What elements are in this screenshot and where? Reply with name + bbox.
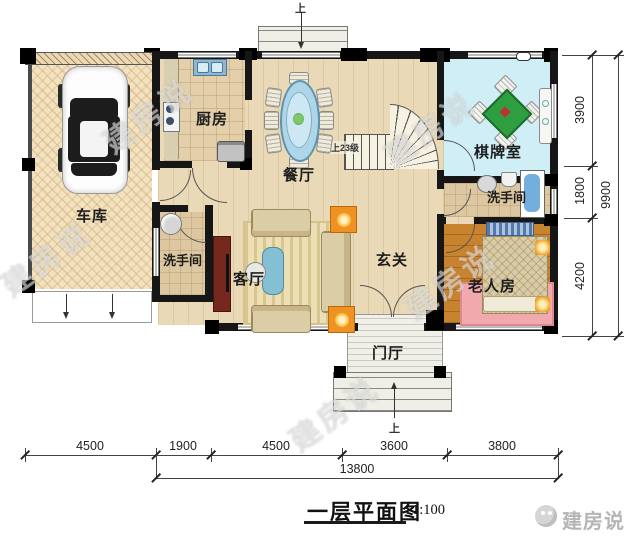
room-label-living: 客厅 [233, 268, 265, 289]
dim-bottom-2: 4500 [262, 439, 290, 453]
chess-cabinet-knob [542, 118, 549, 125]
dining-chair [265, 133, 282, 154]
staircase-label: 上23级 [330, 141, 360, 154]
front-steps-arrow-head [391, 382, 397, 389]
back-steps [258, 26, 348, 54]
sofa-main [321, 231, 351, 313]
nightstand-lamp [535, 240, 550, 255]
dim-right-0: 3900 [573, 88, 587, 132]
top-wall-vent [516, 52, 531, 61]
column [205, 320, 219, 334]
front-steps-arrow [394, 384, 395, 418]
dim-bottom-1: 1900 [169, 439, 197, 453]
dim-right-2: 4200 [573, 254, 587, 298]
chess-cabinet [539, 88, 552, 144]
side-table [328, 306, 355, 333]
sink-left-bath [160, 213, 182, 235]
driveway-arrow-line [112, 294, 113, 312]
kitchen-bottom-wall [158, 161, 192, 168]
bath-right-window [551, 189, 557, 215]
dining-plant [293, 113, 304, 125]
chess-cabinet-knob [542, 100, 549, 107]
room-label-bath-left: 洗手间 [163, 250, 202, 269]
kitchen-top-window [178, 52, 236, 58]
column [544, 214, 558, 226]
kitchen-right-wall [245, 51, 252, 100]
bath-left-right-wall [205, 205, 213, 302]
driveway-arrow-head [63, 312, 69, 319]
table-lamp-glow [335, 313, 349, 327]
brand-logo-icon-eye [541, 511, 545, 515]
dim-bottom-3: 3600 [380, 439, 408, 453]
refrigerator [217, 141, 245, 162]
dim-line-bottom-total [156, 478, 558, 479]
elder-bench [486, 222, 534, 236]
brand-logo-icon-eye [548, 511, 552, 515]
bath-left-window [153, 228, 159, 276]
side-table [330, 206, 357, 233]
dim-line-bottom [25, 455, 558, 456]
brand-name: 建房说 [562, 505, 625, 534]
tv-screen [226, 254, 229, 292]
column [420, 48, 450, 62]
elder-top-wall [437, 217, 446, 224]
floor-plan-page: 上 上 [0, 0, 640, 548]
bathtub-basin [524, 174, 540, 212]
toilet-right-bath [501, 172, 517, 187]
dim-right-total: 9900 [599, 173, 613, 217]
title-underline [304, 521, 406, 524]
up-label-bottom: 上 [389, 420, 400, 436]
dim-line-right [592, 55, 593, 336]
nightstand-lamp [535, 297, 550, 312]
bath-left-top-wall [152, 205, 188, 212]
column [22, 158, 35, 171]
dim-line-right-total [618, 55, 619, 336]
room-label-dining: 餐厅 [283, 164, 315, 185]
dim-bottom-0: 4500 [76, 439, 104, 453]
sofa-single [251, 305, 311, 333]
dim-bottom-4: 3800 [488, 439, 516, 453]
back-steps-arrow [301, 13, 302, 44]
room-label-chess: 棋牌室 [474, 141, 522, 162]
bath-left-bottom-wall [152, 295, 215, 302]
sofa-single [251, 209, 311, 237]
car-rear-window [71, 163, 117, 176]
driveway-arrow-head [109, 312, 115, 319]
room-label-kitchen: 厨房 [196, 108, 228, 129]
room-label-hall: 玄关 [376, 249, 408, 270]
table-lamp-glow [337, 213, 351, 227]
column [341, 48, 367, 61]
column [20, 48, 36, 64]
dining-chair [265, 87, 282, 108]
brand-logo-icon [535, 505, 557, 527]
room-label-bath-right: 洗手间 [487, 187, 526, 206]
back-steps-arrow-head [298, 42, 304, 49]
hall-divider-wall [437, 183, 444, 189]
kitchen-sink-basin [211, 62, 223, 73]
porch-column [434, 366, 446, 378]
driveway [32, 291, 152, 323]
dining-chair [264, 111, 279, 130]
dining-back-door [262, 52, 340, 58]
column [544, 174, 558, 186]
garage-top-trellis [25, 52, 157, 65]
plan-scale: 1:100 [412, 502, 445, 519]
kitchen-sink-basin [197, 62, 209, 73]
dining-chair [319, 111, 334, 130]
dim-bottom-total: 13800 [340, 462, 375, 476]
driveway-arrow-line [66, 294, 67, 312]
room-label-porch: 门厅 [372, 342, 404, 363]
dim-right-1: 1800 [573, 169, 587, 213]
